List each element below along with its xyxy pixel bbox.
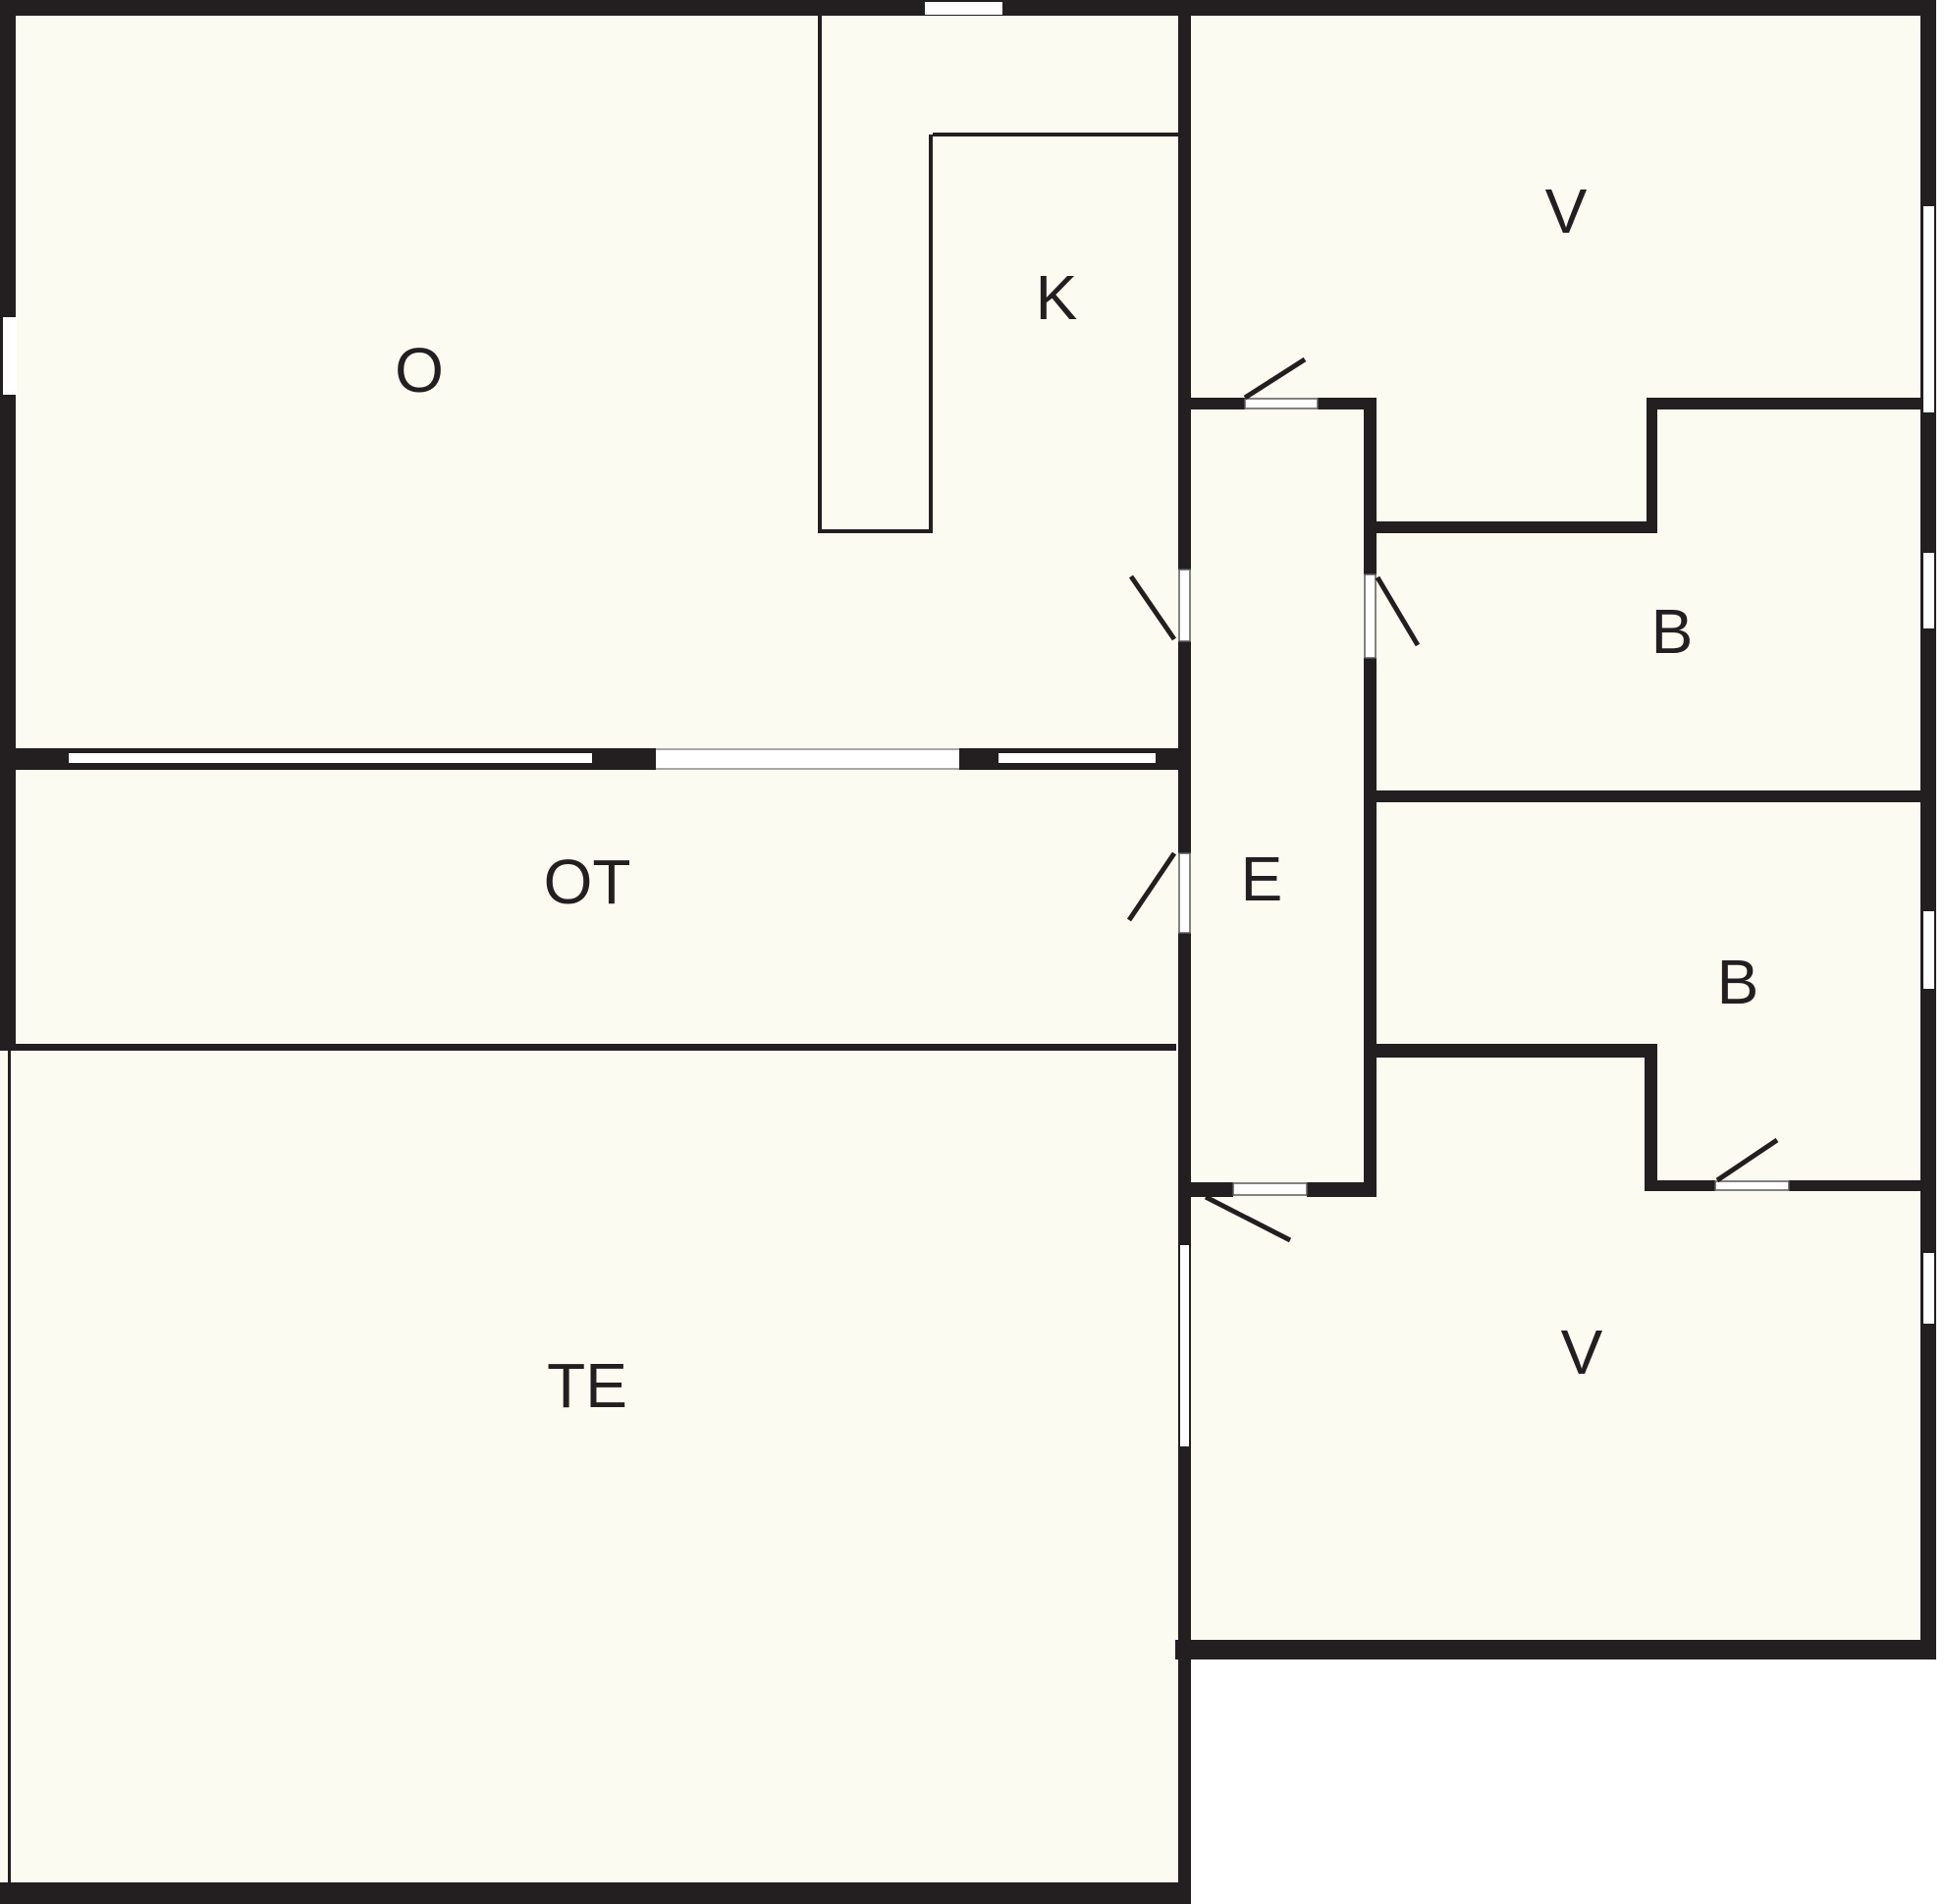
kitchen-partition-right — [929, 135, 933, 533]
outer-wall-left — [0, 0, 16, 1045]
bathroom-lower-step-leg — [1645, 1044, 1657, 1191]
kitchen-partition-top — [933, 133, 1180, 136]
bathroom-lower-low-wall-b — [1789, 1180, 1920, 1191]
door-hall-bath-upper — [1365, 574, 1376, 658]
door-hall-terrace — [1179, 853, 1190, 933]
closet-notch-bottom — [1375, 521, 1657, 533]
floor-plan-drawing: OKVBEBOTVTE — [0, 0, 1944, 1904]
room-label-covered-terrace: OT — [544, 846, 631, 917]
hall-east-wall-lower — [1364, 658, 1377, 1184]
window-left-living — [3, 317, 17, 395]
kitchen-partition-left — [818, 16, 822, 533]
terrace-wall-bottom — [0, 1882, 1191, 1904]
bathroom-lower-low-wall-a — [1645, 1180, 1715, 1191]
hall-south-wall-a — [1191, 1182, 1233, 1197]
bedroom-top-south-wall-a — [1191, 398, 1245, 409]
bathroom-upper-south-wall — [1377, 790, 1920, 802]
bedroom-top-south-wall-c — [1647, 398, 1920, 409]
terrace-edge-left — [8, 1051, 11, 1882]
room-label-living-room: O — [395, 335, 444, 406]
window-living-south-2 — [999, 753, 1156, 763]
closet-notch-east-leg — [1647, 409, 1657, 533]
window-bedroom-terrace — [1180, 1245, 1189, 1446]
top-wall-vent — [925, 2, 1002, 15]
hall-west-wall-upper — [1178, 16, 1191, 570]
living-south-wall-c — [959, 748, 999, 770]
bedroom-top-south-wall-b — [1318, 398, 1377, 409]
terrace-divider — [0, 1044, 1176, 1051]
living-south-wall-b — [592, 748, 656, 770]
window-right-bedroom-bot — [1923, 1253, 1934, 1324]
bedroom-bottom-wall-south — [1175, 1640, 1936, 1659]
room-label-bathroom-lower: B — [1717, 947, 1759, 1017]
window-right-bath-lower — [1923, 911, 1934, 989]
patio-opening — [656, 748, 959, 770]
room-label-bathroom-upper: B — [1651, 596, 1694, 667]
room-label-terrace: TE — [547, 1350, 627, 1421]
room-label-bedroom-bottom: V — [1561, 1317, 1603, 1387]
door-living-hall — [1179, 570, 1190, 641]
room-label-kitchen: K — [1036, 262, 1078, 333]
bathroom-lower-south-wall — [1377, 1044, 1657, 1058]
hall-south-wall-b — [1307, 1182, 1377, 1197]
door-hall-bedroom-bot — [1233, 1183, 1307, 1195]
window-right-bedroom-top — [1923, 206, 1934, 412]
door-bedroom-bath-lower — [1715, 1181, 1789, 1190]
patio-opening-edge-bottom — [656, 768, 959, 770]
hall-west-wall-mid — [1178, 641, 1191, 853]
window-right-bath-upper — [1923, 553, 1934, 628]
floor-plan-page: OKVBEBOTVTE — [0, 0, 1944, 1904]
kitchen-partition-bottom — [818, 529, 933, 533]
floor-main — [0, 0, 1936, 1659]
hall-east-wall-upper — [1364, 409, 1377, 574]
floor-terrace — [0, 1659, 1191, 1904]
living-south-wall-d — [1156, 748, 1191, 770]
door-hall-bedroom-top — [1245, 399, 1318, 408]
room-label-entrance-hall: E — [1241, 843, 1283, 914]
living-south-wall-a — [0, 748, 69, 770]
room-label-bedroom-top: V — [1545, 176, 1588, 246]
patio-opening-edge-top — [656, 748, 959, 750]
window-living-south-1 — [69, 753, 592, 763]
